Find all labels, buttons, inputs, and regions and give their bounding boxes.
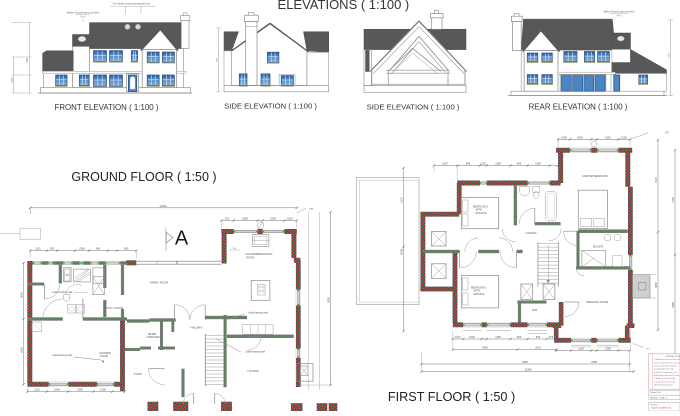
svg-text:Drawing Title:: Drawing Title: (650, 391, 661, 394)
svg-text:1050: 1050 (561, 135, 567, 139)
svg-text:975: 975 (549, 335, 554, 339)
svg-text:DRESSING ROOM: DRESSING ROOM (586, 300, 608, 304)
svg-text:1115: 1115 (35, 247, 41, 251)
svg-text:915: 915 (225, 217, 230, 221)
svg-text:1115: 1115 (34, 388, 40, 392)
svg-text:900: 900 (124, 247, 129, 251)
svg-text:8465: 8465 (669, 52, 671, 58)
svg-text:ENSUITE: ENSUITE (593, 246, 604, 249)
svg-text:1050: 1050 (621, 135, 627, 139)
svg-text:14640: 14640 (159, 204, 167, 208)
svg-text:275: 275 (665, 132, 670, 135)
svg-text:1158: 1158 (495, 335, 501, 339)
svg-text:940: 940 (96, 247, 101, 251)
svg-text:1980: 1980 (242, 217, 248, 221)
svg-text:(Typ.): (Typ.) (80, 16, 86, 18)
svg-text:5040: 5040 (20, 292, 24, 298)
svg-text:2360: 2360 (77, 388, 83, 392)
svg-text:840: 840 (517, 335, 522, 339)
svg-text:17m above existing (proposed): 17m above existing (proposed) roof (112, 3, 150, 6)
svg-text:Marley Smooth grey roof tiles: Marley Smooth grey roof tiles (67, 12, 100, 15)
svg-text:4650: 4650 (654, 282, 658, 288)
svg-text:ELEVATIONS ( 1:100 ): ELEVATIONS ( 1:100 ) (278, 0, 410, 12)
svg-text:2190: 2190 (100, 388, 106, 392)
svg-text:Marley Smooth grey roof tiles: Marley Smooth grey roof tiles (603, 11, 635, 14)
svg-text:MASTER BEDROOM: MASTER BEDROOM (583, 174, 608, 178)
svg-text:5550: 5550 (20, 347, 24, 353)
svg-text:1815: 1815 (287, 217, 293, 221)
svg-text:1203: 1203 (469, 335, 475, 339)
svg-text:LANDING: LANDING (525, 232, 536, 235)
svg-text:(Typ.): (Typ.) (616, 15, 622, 17)
svg-text:1947: 1947 (455, 335, 461, 339)
svg-text:ENSUITE: ENSUITE (476, 212, 487, 215)
svg-text:Load-bearing wall: Load-bearing wall (52, 291, 72, 294)
svg-text:CUPBOARD: CUPBOARD (146, 336, 160, 339)
svg-text:1203: 1203 (480, 162, 486, 166)
svg-text:2575: 2575 (535, 346, 541, 350)
svg-text:REAR ELEVATION ( 1:100 ): REAR ELEVATION ( 1:100 ) (529, 102, 628, 111)
svg-text:HUB: HUB (532, 309, 538, 312)
svg-text:UTILITY ROOM: UTILITY ROOM (105, 306, 123, 310)
svg-text:1950: 1950 (605, 135, 611, 139)
svg-text:4040: 4040 (482, 346, 488, 350)
svg-text:SIDE ELEVATION ( 1:100 ): SIDE ELEVATION ( 1:100 ) (367, 102, 460, 111)
svg-text:ROOM: ROOM (100, 354, 108, 358)
svg-text:2340: 2340 (54, 388, 60, 392)
svg-text:SIDE ELEVATION ( 1:100 ): SIDE ELEVATION ( 1:100 ) (224, 101, 317, 110)
svg-text:GENERAL NOTES:: GENERAL NOTES: (666, 355, 680, 358)
svg-text:1060: 1060 (578, 347, 584, 351)
svg-text:SDHB 47 / GSB / 1: SDHB 47 / GSB / 1 (650, 397, 668, 399)
svg-text:FRONT ELEVATION ( 1:100 ): FRONT ELEVATION ( 1:100 ) (55, 103, 159, 112)
svg-text:A: A (175, 228, 189, 250)
svg-text:943: 943 (517, 162, 522, 166)
svg-text:ENSUITE: ENSUITE (474, 293, 485, 296)
svg-text:STUDY: STUDY (134, 372, 143, 376)
svg-text:843: 843 (536, 335, 541, 339)
svg-text:LOUNGE: LOUNGE (248, 369, 259, 373)
svg-text:Load-bearing wall: Load-bearing wall (52, 354, 72, 357)
svg-text:8465: 8465 (27, 57, 29, 63)
svg-text:GROUND FLOOR ( 1:50 ): GROUND FLOOR ( 1:50 ) (71, 170, 216, 184)
svg-text:FIRST FLOOR ( 1:50 ): FIRST FLOOR ( 1:50 ) (388, 390, 515, 404)
svg-text:930: 930 (50, 247, 55, 251)
svg-text:275: 275 (309, 208, 314, 211)
svg-text:9465: 9465 (522, 360, 528, 364)
svg-text:1109: 1109 (535, 162, 541, 166)
svg-text:DINING ROOM: DINING ROOM (150, 280, 168, 284)
svg-text:1158: 1158 (495, 162, 501, 166)
svg-text:1500: 1500 (270, 217, 276, 221)
svg-text:5590: 5590 (327, 297, 331, 303)
svg-text:8465: 8465 (217, 57, 219, 63)
svg-text:HALLWAY: HALLWAY (191, 326, 203, 330)
svg-text:1585: 1585 (605, 347, 611, 351)
svg-text:5480: 5480 (671, 302, 675, 308)
svg-text:4725: 4725 (654, 177, 658, 183)
svg-text:11065: 11065 (524, 368, 532, 372)
svg-text:1467: 1467 (442, 162, 448, 166)
svg-text:Load-bearing wall: Load-bearing wall (245, 350, 265, 353)
svg-text:SCALE 1:100 AND 1:50: SCALE 1:100 AND 1:50 (651, 407, 671, 410)
svg-text:1950: 1950 (577, 135, 583, 139)
svg-text:3458: 3458 (591, 360, 597, 364)
svg-text:2360: 2360 (79, 247, 85, 251)
svg-text:7125: 7125 (671, 197, 675, 203)
svg-text:Load-bearing wall: Load-bearing wall (248, 311, 268, 314)
svg-text:2350: 2350 (12, 77, 14, 83)
svg-text:3008: 3008 (400, 249, 404, 255)
svg-text:5175: 5175 (400, 197, 404, 203)
svg-text:Proposed:: Proposed: (650, 404, 659, 406)
svg-text:ROOM: ROOM (246, 255, 254, 259)
svg-text:948: 948 (466, 162, 471, 166)
